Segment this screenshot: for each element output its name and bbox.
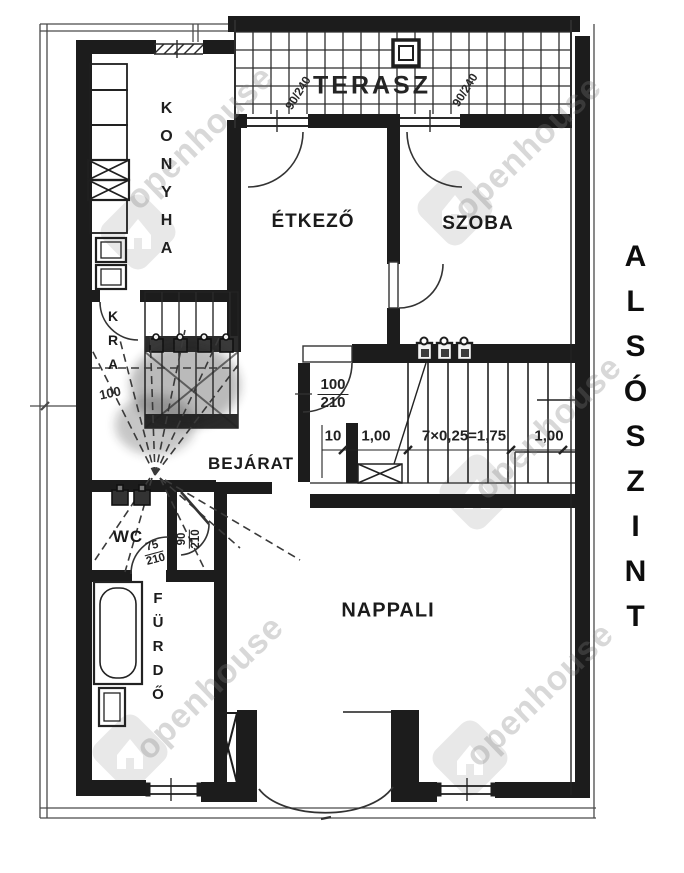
wc-label: WC xyxy=(113,527,143,547)
bejarat-label: BEJÁRAT xyxy=(208,454,294,474)
vestibule-door-width: 90 xyxy=(176,530,190,549)
furdo-label: FÜRDŐ xyxy=(151,590,166,710)
terasz-label: TERASZ xyxy=(313,72,431,101)
stair-dim-landing: 1,00 xyxy=(361,428,390,445)
szoba-label: SZOBA xyxy=(442,213,514,235)
hall-door-dim: 100 210 xyxy=(317,377,348,411)
floorplan-page: openhouse openhouse openhouse openhouse … xyxy=(0,0,684,873)
level-title: ALSÓSZINT xyxy=(620,240,650,645)
hall-door-height: 210 xyxy=(320,395,345,412)
stair-dim-right: 1,00 xyxy=(534,428,563,445)
vestibule-door-height: 210 xyxy=(190,529,203,548)
vestibule-door-dim: 90 210 xyxy=(176,529,202,548)
nappali-label: NAPPALI xyxy=(341,600,434,623)
bathtub xyxy=(94,582,142,684)
under-stair-box xyxy=(358,464,402,483)
floor-plan-drawing xyxy=(0,0,684,873)
etkezo-label: ÉTKEZŐ xyxy=(271,211,354,233)
hall-door-width: 100 xyxy=(317,377,348,395)
stair-dim-formula: 7×0,25=1,75 xyxy=(422,428,506,445)
konyha-label: KONYHA xyxy=(158,100,174,268)
stair-dim-offset: 10 xyxy=(325,428,342,445)
kitchen-window xyxy=(154,40,203,58)
terrace-chimney xyxy=(393,40,419,66)
winder-staircase xyxy=(115,292,240,455)
kamra-label: KRA xyxy=(106,308,120,380)
gas-meter-icons xyxy=(417,338,472,361)
